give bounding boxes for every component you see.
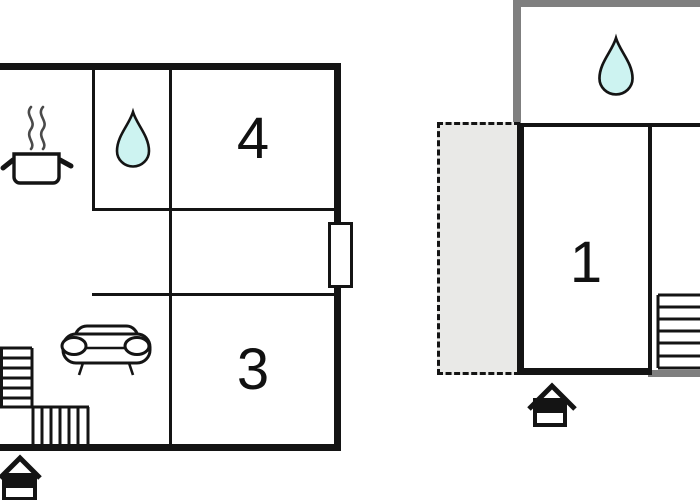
room1-right-wall bbox=[648, 127, 652, 372]
bathroom-bottom-wall bbox=[92, 208, 334, 211]
room-3-label: 3 bbox=[172, 296, 334, 444]
water-drop-icon bbox=[114, 109, 152, 169]
room1-left-wall bbox=[517, 123, 524, 375]
gray-top-wall bbox=[513, 0, 700, 7]
door-symbol bbox=[328, 222, 353, 288]
water-drop-icon bbox=[596, 35, 636, 97]
room1-bottom-wall bbox=[517, 368, 652, 375]
room-4-label: 4 bbox=[172, 70, 334, 208]
stairs-icon bbox=[656, 293, 700, 370]
house-entrance-icon bbox=[528, 384, 576, 428]
stairs-icon bbox=[0, 345, 91, 444]
floorplan-canvas: 4 3 bbox=[0, 0, 700, 500]
terrace-dashed-area bbox=[437, 122, 520, 375]
bathroom-left-wall bbox=[92, 70, 95, 211]
gray-bottom-wall bbox=[648, 370, 700, 377]
room-1-label: 1 bbox=[524, 127, 648, 368]
steam-pot-icon bbox=[0, 98, 78, 190]
gray-left-wall bbox=[513, 0, 521, 126]
house-entrance-icon bbox=[0, 454, 44, 500]
